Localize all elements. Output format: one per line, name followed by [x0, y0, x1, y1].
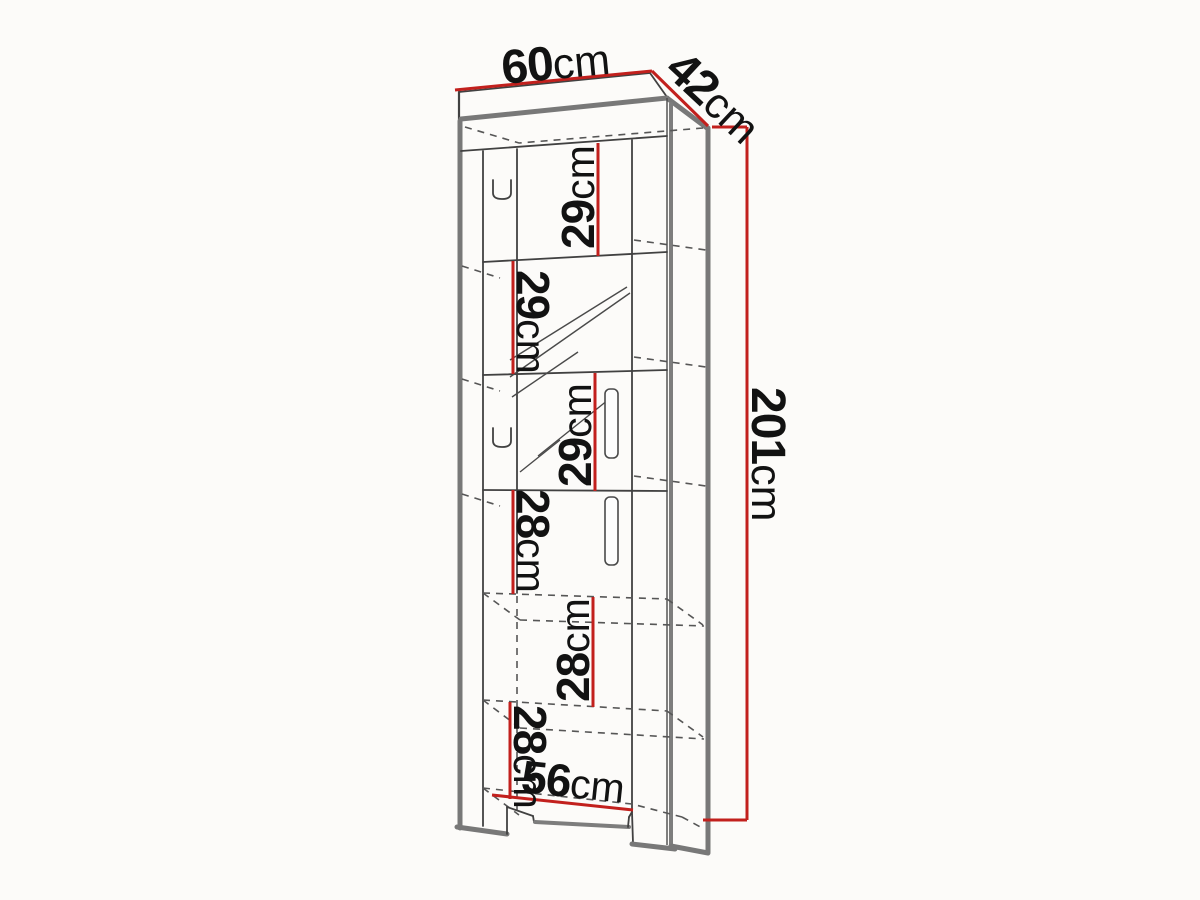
height-dimension-label: 201cm [741, 387, 794, 521]
shelf-3-left-hidden [462, 494, 500, 506]
plinth-bottom-edge [535, 822, 629, 827]
compartment-5-height-label: 28cm [547, 598, 599, 702]
compartment-2-height-label: 29cm [507, 270, 559, 374]
compartment-1-height-label: 29cm [552, 145, 604, 249]
width-dimension-label: 60cm [499, 32, 612, 95]
shelf-4-front-hidden [483, 593, 667, 599]
plinth-and-legs [457, 807, 675, 849]
hinge-icon [493, 428, 511, 447]
floor-right-diag [682, 817, 704, 829]
plinth-notch-right [628, 817, 629, 827]
shelf-2-left-hidden [462, 379, 500, 391]
shelf-4-back-hidden [520, 620, 704, 626]
door-handle [605, 389, 618, 458]
dimension-labels: 60cm 42cm 201cm 29cm 29cm 29cm 28cm 28cm… [499, 32, 794, 813]
shelf-1-left-hidden [462, 266, 500, 278]
compartment-4-height-label: 28cm [507, 489, 559, 593]
left-leg-bottom [457, 827, 507, 834]
right-leg-bottom [632, 844, 675, 849]
hinge-icon [493, 180, 511, 199]
top-panel-bottom-edge [461, 98, 667, 119]
cabinet-dimension-diagram: 60cm 42cm 201cm 29cm 29cm 29cm 28cm 28cm… [0, 0, 1200, 900]
right-leg-inner-edge [632, 812, 633, 843]
compartment-3-height-label: 29cm [549, 383, 601, 487]
shelf-1-line [483, 252, 667, 262]
shelf-4-left-diag [483, 593, 520, 620]
door-handle [605, 497, 618, 565]
inner-width-dimension-label: 56cm [519, 750, 628, 813]
technical-drawing-canvas: 60cm 42cm 201cm 29cm 29cm 29cm 28cm 28cm… [0, 0, 1200, 900]
